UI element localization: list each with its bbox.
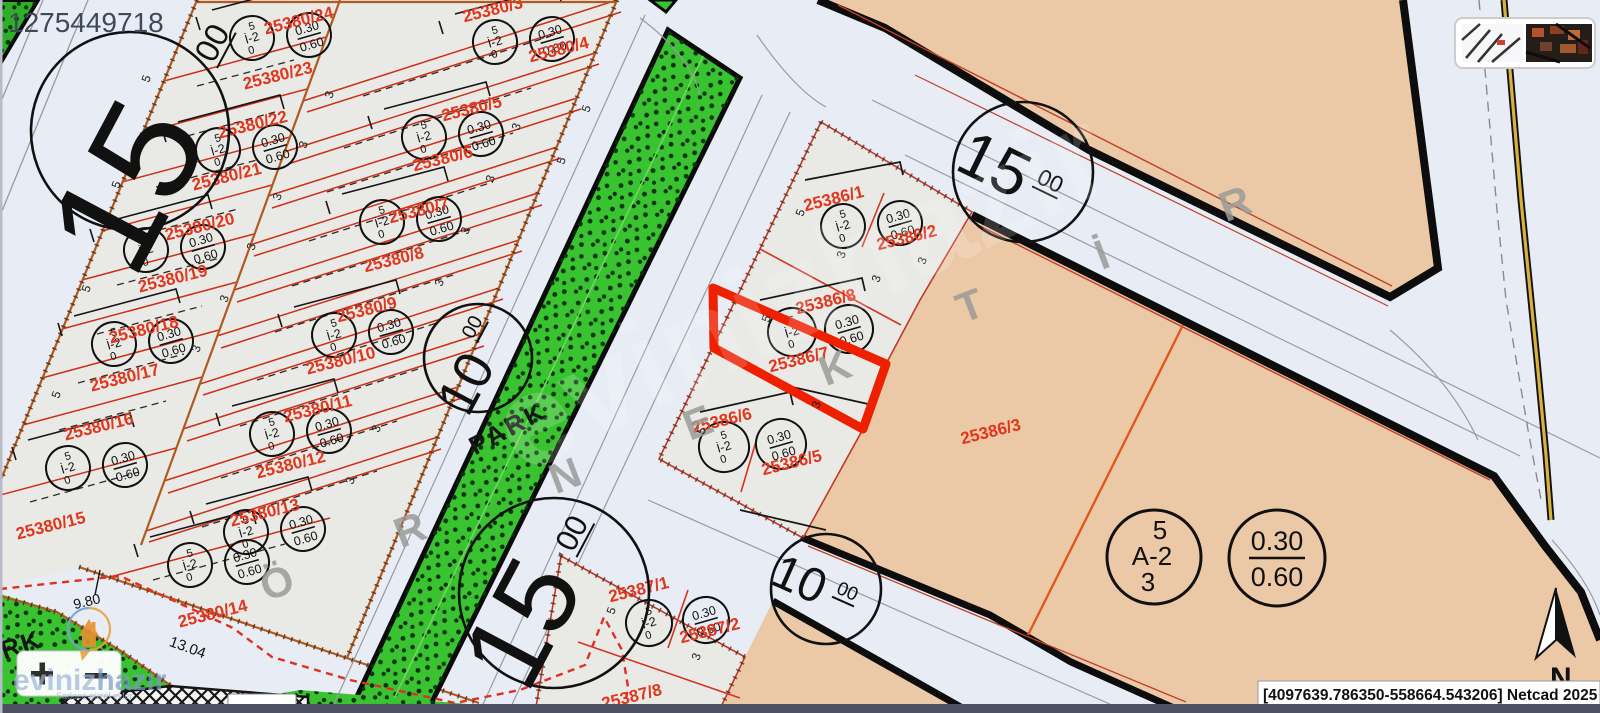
svg-text:Sadece güzel evler: Sadece güzel evler	[56, 691, 133, 701]
svg-text:3: 3	[1141, 567, 1155, 597]
svg-text:[4097639.786350-558664.543206]: [4097639.786350-558664.543206] Netcad 20…	[1263, 687, 1598, 704]
svg-text:0.30: 0.30	[1251, 526, 1304, 556]
svg-text:1275449718: 1275449718	[8, 7, 164, 38]
svg-text:0.60: 0.60	[1251, 562, 1304, 592]
